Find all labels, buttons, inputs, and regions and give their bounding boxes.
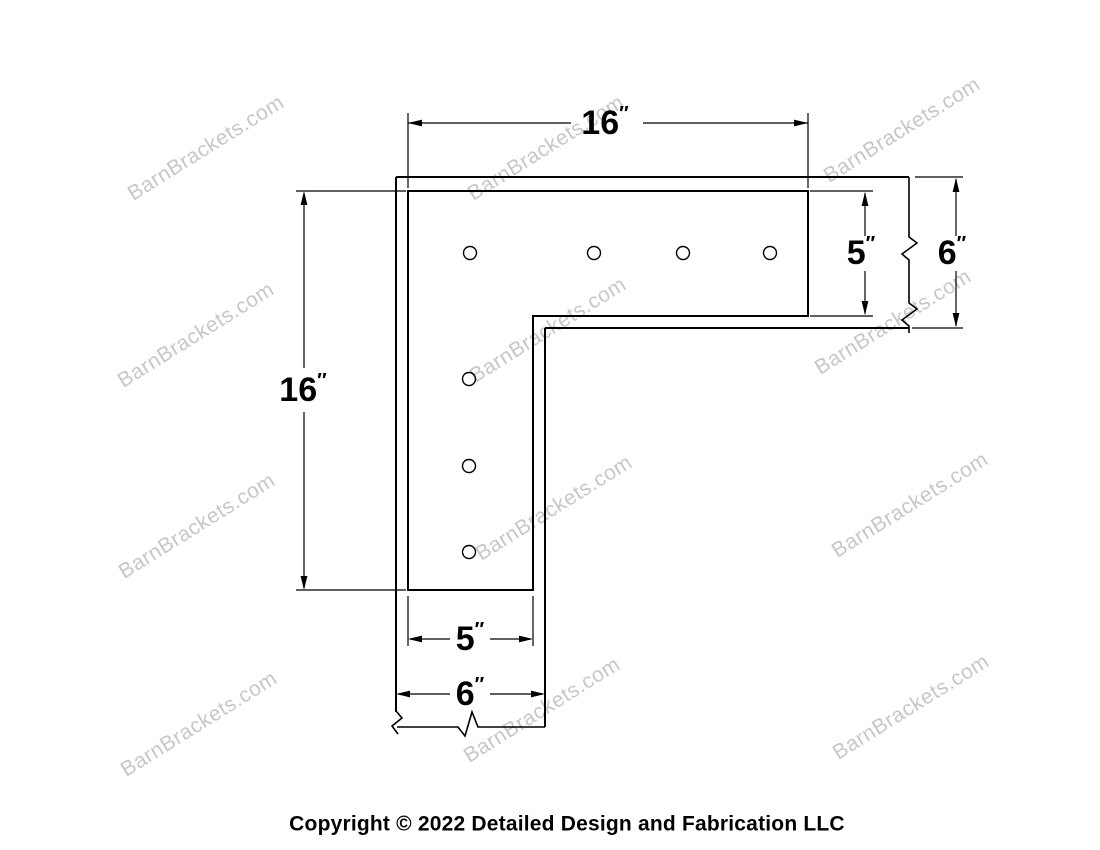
- arrowhead: [301, 191, 308, 205]
- bolt-hole: [464, 247, 477, 260]
- dimension-label-top-length: 16″: [581, 103, 629, 142]
- copyright-text: Copyright © 2022 Detailed Design and Fab…: [289, 813, 845, 836]
- dimension-top-length: 16″: [408, 103, 808, 188]
- watermark: BarnBrackets.com: [124, 91, 288, 206]
- arrowhead: [953, 178, 960, 192]
- arrowhead: [862, 192, 869, 206]
- arrowhead: [301, 576, 308, 590]
- dimension-bottom-strap-width: 5″: [408, 596, 533, 658]
- arrowhead: [408, 636, 422, 643]
- watermark: BarnBrackets.com: [114, 278, 278, 393]
- bracket-technical-drawing: BarnBrackets.com BarnBrackets.com BarnBr…: [0, 0, 1100, 850]
- watermark: BarnBrackets.com: [115, 469, 279, 584]
- watermark-layer: BarnBrackets.com BarnBrackets.com BarnBr…: [114, 73, 993, 782]
- bolt-hole: [677, 247, 690, 260]
- bolt-hole: [463, 546, 476, 559]
- watermark: BarnBrackets.com: [828, 448, 992, 563]
- drawing-page: BarnBrackets.com BarnBrackets.com BarnBr…: [0, 0, 1100, 850]
- bolt-hole: [588, 247, 601, 260]
- dimension-label-bottom-strap-width: 5″: [456, 619, 485, 658]
- dimension-label-bottom-beam-width: 6″: [456, 674, 485, 713]
- watermark: BarnBrackets.com: [811, 265, 975, 380]
- arrowhead: [794, 120, 808, 127]
- dimension-left-length: 16″: [279, 191, 406, 590]
- bracket-outline: [408, 191, 808, 590]
- dimension-label-left-length: 16″: [279, 370, 327, 409]
- arrowhead: [408, 120, 422, 127]
- arrowhead: [396, 691, 410, 698]
- arrowhead: [519, 636, 533, 643]
- dimension-right-strap-width: 5″: [810, 191, 876, 316]
- dimension-bottom-beam-width: 6″: [396, 674, 545, 713]
- bolt-hole: [463, 460, 476, 473]
- watermark: BarnBrackets.com: [117, 667, 281, 782]
- arrowhead: [953, 313, 960, 327]
- watermark: BarnBrackets.com: [829, 650, 993, 765]
- dimension-label-right-strap-width: 5″: [847, 233, 876, 272]
- watermark: BarnBrackets.com: [472, 451, 636, 566]
- arrowhead: [862, 301, 869, 315]
- bolt-hole: [764, 247, 777, 260]
- watermark: BarnBrackets.com: [460, 653, 624, 768]
- watermark: BarnBrackets.com: [820, 73, 984, 188]
- watermark: BarnBrackets.com: [466, 273, 630, 388]
